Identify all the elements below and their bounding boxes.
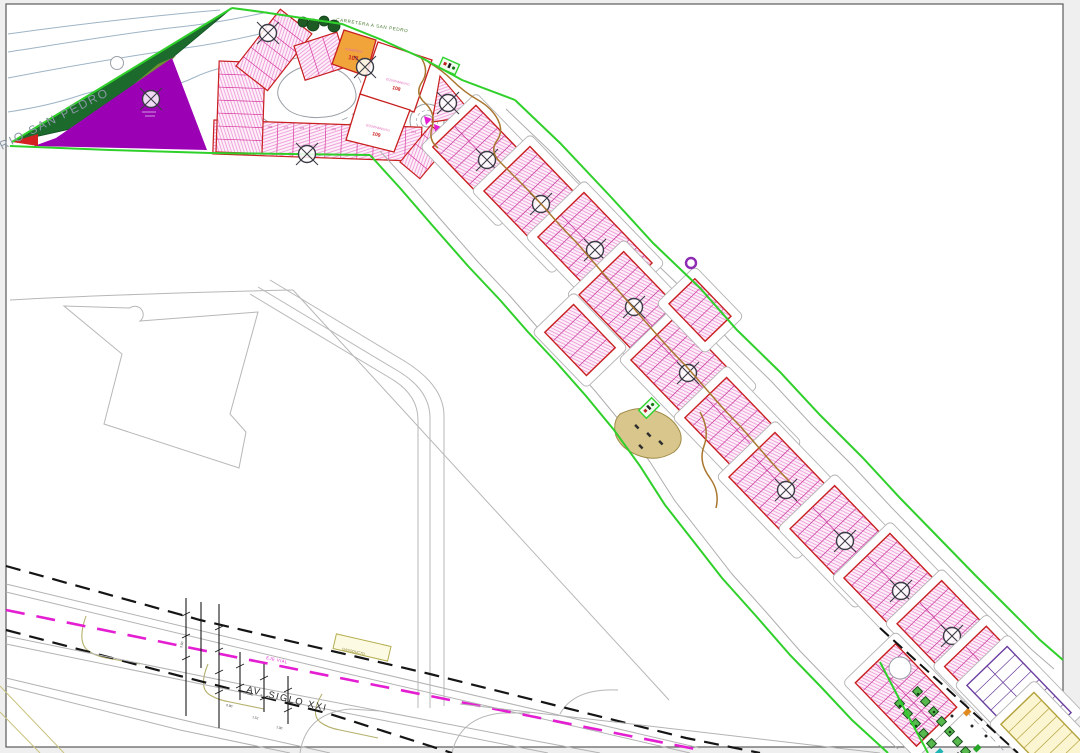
small-circle	[111, 57, 124, 70]
tree-dot	[917, 693, 920, 696]
cul-de-sac	[889, 657, 911, 679]
generated-map-layer: 0.901.521.003.50183182181180179178177176…	[0, 4, 1080, 753]
lot-number: 176	[331, 127, 336, 131]
lot-number: 180	[267, 125, 272, 129]
lot-number: 178	[299, 126, 304, 130]
lot-number: 179	[283, 125, 288, 129]
street-dot	[951, 715, 954, 718]
tree-dot	[933, 711, 936, 714]
street-dot	[971, 725, 974, 728]
lot	[217, 100, 263, 115]
lot-number: 171	[411, 130, 416, 134]
street-icon	[935, 748, 944, 753]
lot	[216, 126, 262, 141]
tree-dot	[899, 705, 902, 708]
lot	[217, 113, 263, 128]
site-plan-viewer: 0.901.521.003.50183182181180179178177176…	[0, 0, 1080, 753]
tree-dot	[949, 731, 952, 734]
lot-number: 177	[315, 127, 320, 131]
lot	[218, 87, 264, 102]
street-dot	[985, 735, 988, 738]
lot	[216, 139, 262, 154]
site-plan-canvas: 0.901.521.003.50183182181180179178177176…	[0, 0, 1080, 753]
